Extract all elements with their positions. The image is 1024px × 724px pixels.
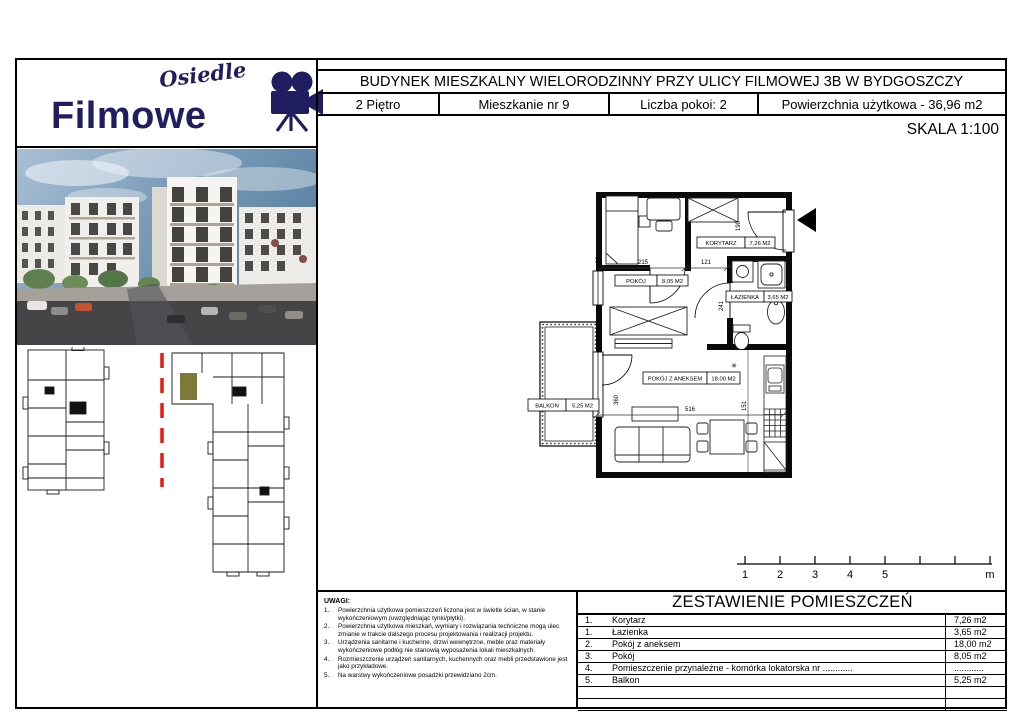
window-left [593,271,603,305]
table-row: 1. Łazienka 3,65 m2 [578,627,1007,639]
room-summary-table: ZESTAWIENIE POMIESZCZEŃ 1. Korytarz 7,26… [578,592,1007,711]
svg-text:POKÓJ: POKÓJ [626,278,646,285]
building-outline-left [23,347,109,494]
label-pokoj: POKÓJ 8,05 M2 [615,275,688,286]
notes: UWAGI: 1.Powierzchnia użytkowa pomieszcz… [324,598,568,680]
note-item: 1.Powierzchnia użytkowa pomieszczeń licz… [324,607,568,622]
scale-label: SKALA 1:100 [907,121,999,139]
label-pokoj-z-aneksem: POKÓJ Z ANEKSEM 18,00 M2 [643,372,740,384]
sofa [615,427,690,462]
svg-text:POKÓJ Z ANEKSEM: POKÓJ Z ANEKSEM [648,376,703,383]
kitchen-counter [764,356,786,472]
scale-tick-2: 2 [777,569,783,581]
bathroom-door [695,283,730,318]
bed [606,196,650,264]
building-photo [17,149,316,345]
stove [764,409,786,437]
desk [647,198,680,231]
dim-main-width: 516 [685,407,696,413]
label-lazienka: ŁAZIENKA 3,65 M2 [726,291,792,302]
table-row: 5. Balkon 5,25 m2 [578,675,1007,687]
scale-unit: m [985,569,994,581]
left-column-divider [316,58,318,709]
balcony [540,322,598,446]
shower [758,261,785,288]
scale-bar: 1 2 3 4 5 m [735,550,1003,582]
floor-cell: 2 Piętro [318,94,438,114]
dim-bathroom: 241 [719,300,725,311]
dim-pokoj-width: 215 [638,260,649,266]
table-row-empty [578,687,1007,699]
note-item: 3.Urządzenia sanitarne i kuchenne, drzwi… [324,639,568,654]
logo: Osiedle Filmowe [17,60,316,146]
table-row: 1. Korytarz 7,26 m2 [578,615,1007,627]
logo-script-text: Osiedle [158,57,248,92]
room-count-cell: Liczba pokoi: 2 [608,94,757,114]
table-title: ZESTAWIENIE POMIESZCZEŃ [578,592,1007,615]
table-row: 2. Pokój z aneksem 18,00 m2 [578,639,1007,651]
building-outline-right [172,353,289,576]
dim-main-height: 360 [614,394,620,405]
svg-text:8,05 M2: 8,05 M2 [662,279,683,285]
coffee-table [632,407,678,421]
notes-heading: UWAGI: [324,598,568,605]
living-wardrobe [610,307,687,348]
apartment-floor-plan: 215 121 80 190 241 360 516 151 ✳ KORYTAR… [520,160,830,490]
apartment-cell: Mieszkanie nr 9 [438,94,608,114]
sheet-title: BUDYNEK MIESZKALNY WIELORODZINNY PRZY UL… [318,71,1005,94]
toilet [733,325,750,350]
svg-text:7,26 M2: 7,26 M2 [750,241,771,247]
building-key-plans [17,347,316,587]
dim-niche: 80 [596,256,602,263]
scale-tick-3: 3 [812,569,818,581]
fridge [764,442,786,470]
svg-text:3,65 M2: 3,65 M2 [768,295,789,301]
note-item: 5.Na warstwy wykończeniowe posadzki prze… [324,672,568,680]
svg-text:5,25 M2: 5,25 M2 [572,404,593,410]
apartment-highlight [180,373,197,400]
note-item: 2.Powierzchnia użytkowa mieszkań, wymiar… [324,623,568,638]
svg-text:ŁAZIENKA: ŁAZIENKA [731,295,759,301]
entrance-arrow-icon [797,208,816,232]
table-row-empty [578,699,1007,711]
dim-korytarz-width: 121 [701,260,712,266]
title-block: BUDYNEK MIESZKALNY WIELORODZINNY PRZY UL… [316,69,1007,116]
svg-text:BALKON: BALKON [535,404,559,410]
washing-machine [732,261,753,282]
plan-sheet: Osiedle Filmowe BUDYNEK MIESZKALNY WIELO… [0,0,1024,724]
label-korytarz: KORYTARZ 7,26 M2 [697,237,775,248]
table-row: 3. Pokój 8,05 m2 [578,651,1007,663]
scale-tick-4: 4 [847,569,853,581]
logo-main-text: Filmowe [51,95,207,138]
svg-text:18,00 M2: 18,00 M2 [711,377,735,383]
label-balkon: BALKON 5,25 M2 [528,399,599,411]
washbasin [768,300,785,324]
dim-kitchen: 151 [742,400,748,411]
dim-wardrobe: 190 [736,220,742,231]
svg-text:KORYTARZ: KORYTARZ [705,241,736,247]
logo-box-divider [15,146,318,148]
note-item: 4.Rozmieszczenie urządzeń sanitarnych, k… [324,656,568,671]
scale-tick-5: 5 [882,569,888,581]
star-symbol: ✳ [731,362,737,370]
usable-area-cell: Powierzchnia użytkowa - 36,96 m2 [757,94,1005,114]
table-row: 4. Pomieszczenie przynależne - komórka l… [578,663,1007,675]
hall-wardrobe [688,198,738,222]
scale-tick-1: 1 [742,569,748,581]
